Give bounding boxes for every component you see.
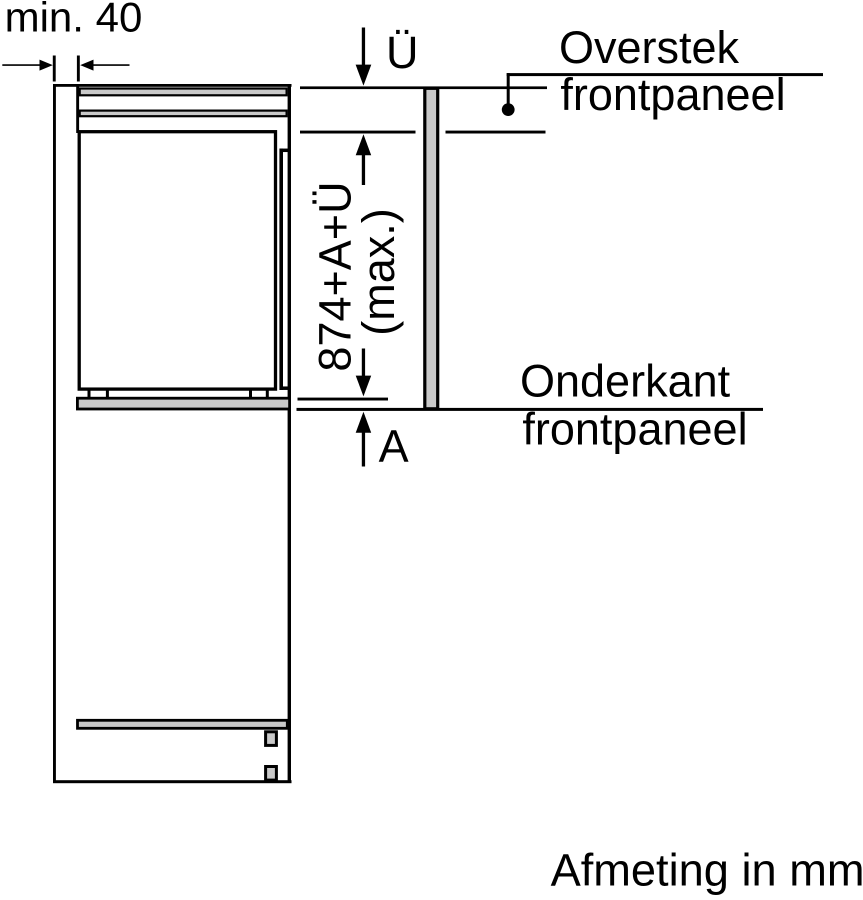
svg-text:A: A	[379, 421, 409, 472]
svg-text:min. 40: min. 40	[5, 0, 143, 41]
svg-text:Ü: Ü	[386, 27, 419, 78]
svg-text:Afmeting in mm: Afmeting in mm	[551, 845, 863, 896]
svg-text:frontpaneel: frontpaneel	[560, 69, 785, 120]
svg-text:Onderkant: Onderkant	[520, 355, 731, 406]
svg-text:frontpaneel: frontpaneel	[522, 403, 747, 454]
svg-text:(max.): (max.)	[353, 208, 404, 336]
svg-text:Overstek: Overstek	[559, 22, 740, 73]
